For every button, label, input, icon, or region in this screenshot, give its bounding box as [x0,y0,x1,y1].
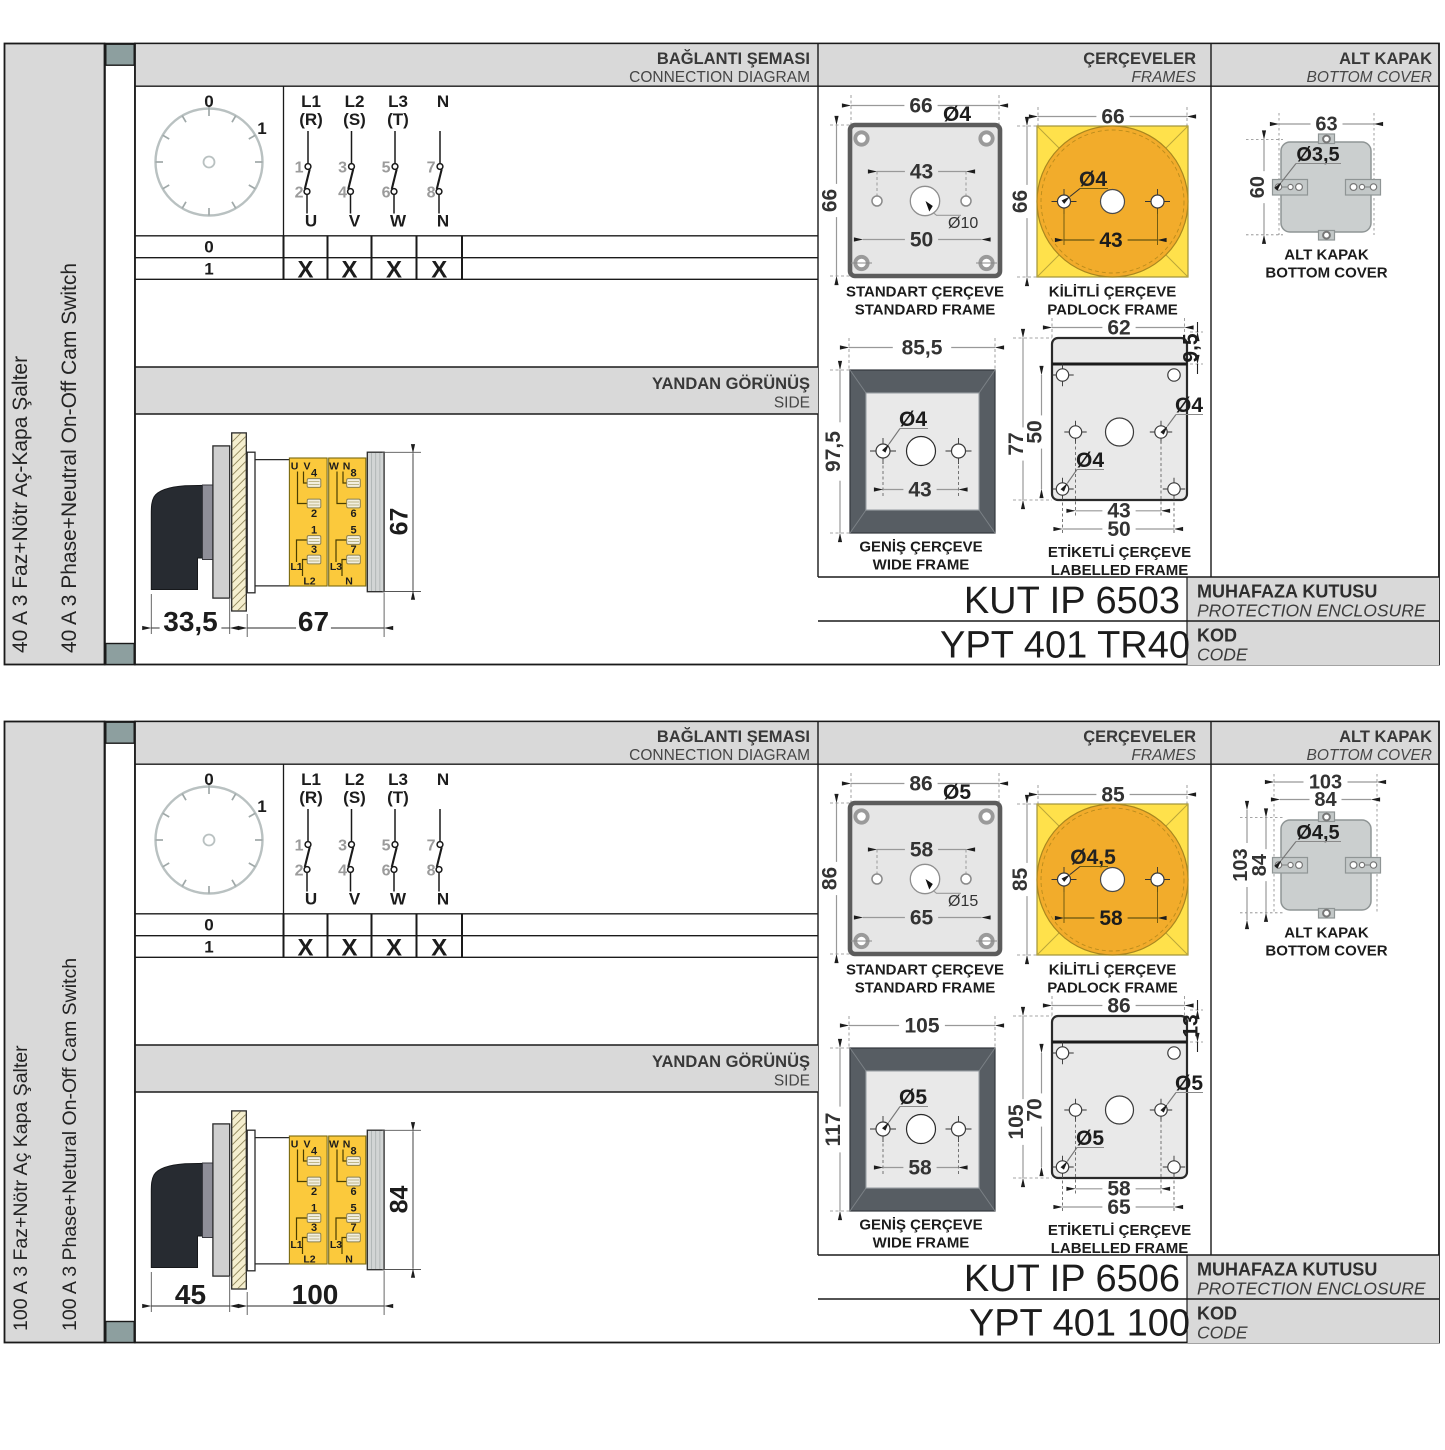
svg-text:6: 6 [382,185,391,202]
svg-text:BAĞLANTI ŞEMASI: BAĞLANTI ŞEMASI [657,727,810,746]
svg-text:X: X [386,257,402,284]
svg-text:X: X [341,257,357,284]
svg-text:Ø4,5: Ø4,5 [1296,822,1339,844]
svg-text:STANDART ÇERÇEVE: STANDART ÇERÇEVE [846,284,1004,301]
svg-text:L2: L2 [345,770,365,789]
svg-text:5: 5 [350,1203,356,1215]
svg-text:3: 3 [338,838,347,855]
svg-text:N: N [343,1139,351,1151]
svg-text:CODE: CODE [1197,1323,1248,1343]
svg-text:U: U [291,1139,299,1151]
svg-text:0: 0 [204,238,213,257]
svg-text:85: 85 [1009,868,1032,892]
svg-text:FRAMES: FRAMES [1131,747,1196,764]
svg-text:66: 66 [909,94,932,117]
svg-text:Ø3,5: Ø3,5 [1296,144,1339,166]
svg-text:40 A 3 Faz+Nötr Aç-Kapa Şalter: 40 A 3 Faz+Nötr Aç-Kapa Şalter [9,356,32,653]
svg-text:8: 8 [350,468,356,480]
svg-text:BOTTOM COVER: BOTTOM COVER [1265,265,1387,282]
svg-text:63: 63 [1315,114,1337,136]
svg-text:U: U [291,461,299,473]
svg-text:67: 67 [386,508,414,536]
svg-text:L1: L1 [301,770,321,789]
svg-text:86: 86 [909,772,932,795]
svg-text:SIDE: SIDE [774,1073,810,1090]
svg-text:1: 1 [295,838,304,855]
svg-text:2: 2 [295,185,304,202]
svg-text:2: 2 [311,508,317,520]
svg-text:X: X [386,935,402,962]
svg-text:33,5: 33,5 [163,606,218,637]
svg-text:WIDE FRAME: WIDE FRAME [873,1235,970,1252]
svg-text:1: 1 [257,797,266,816]
svg-text:L1: L1 [290,561,302,573]
svg-text:(S): (S) [343,788,366,807]
svg-text:U: U [305,212,317,231]
svg-text:62: 62 [1107,316,1130,339]
svg-text:84: 84 [1314,789,1337,811]
svg-text:67: 67 [298,606,329,637]
svg-text:PROTECTION ENCLOSURE: PROTECTION ENCLOSURE [1197,601,1426,621]
svg-text:N: N [437,212,449,231]
svg-text:W: W [329,1139,339,1151]
svg-text:BOTTOM COVER: BOTTOM COVER [1307,747,1432,764]
svg-text:40 A 3 Phase+Neutral On-Off Ca: 40 A 3 Phase+Neutral On-Off Cam Switch [58,263,81,653]
svg-text:ÇERÇEVELER: ÇERÇEVELER [1083,50,1196,68]
svg-text:43: 43 [910,160,933,183]
svg-text:66: 66 [1101,105,1124,128]
svg-text:50: 50 [910,228,933,251]
svg-text:Ø4: Ø4 [1076,449,1104,472]
svg-text:2: 2 [311,1186,317,1198]
svg-text:(T): (T) [387,788,409,807]
svg-text:1: 1 [295,160,304,177]
svg-text:7: 7 [427,838,436,855]
svg-text:6: 6 [350,508,356,520]
svg-text:84: 84 [1249,853,1271,876]
svg-text:ALT KAPAK: ALT KAPAK [1284,247,1369,264]
svg-text:5: 5 [382,838,391,855]
svg-text:100: 100 [292,1279,339,1310]
svg-text:PROTECTION ENCLOSURE: PROTECTION ENCLOSURE [1197,1279,1426,1299]
svg-text:117: 117 [822,1113,845,1147]
svg-text:8: 8 [427,185,436,202]
svg-text:L2: L2 [303,1254,315,1266]
svg-text:X: X [297,257,313,284]
svg-text:4: 4 [338,863,347,880]
svg-text:84: 84 [386,1186,414,1214]
svg-text:STANDART ÇERÇEVE: STANDART ÇERÇEVE [846,962,1004,979]
svg-text:8: 8 [427,863,436,880]
svg-text:N: N [345,1254,353,1266]
svg-text:L2: L2 [303,576,315,588]
svg-text:V: V [349,890,361,909]
svg-text:CODE: CODE [1197,645,1248,665]
svg-text:ALT KAPAK: ALT KAPAK [1284,925,1369,942]
svg-text:Ø4: Ø4 [943,103,971,126]
svg-text:STANDARD FRAME: STANDARD FRAME [855,302,996,319]
svg-text:WIDE FRAME: WIDE FRAME [873,557,970,574]
svg-text:L3: L3 [388,770,408,789]
svg-text:Ø10: Ø10 [948,215,978,232]
svg-text:4: 4 [311,1146,318,1158]
svg-text:KOD: KOD [1197,626,1237,646]
svg-text:5: 5 [350,525,356,537]
svg-text:85,5: 85,5 [902,336,943,359]
svg-text:N: N [345,576,353,588]
svg-text:KUT IP 6503: KUT IP 6503 [964,580,1180,622]
svg-text:1: 1 [204,260,213,279]
svg-text:50: 50 [1024,420,1047,443]
svg-text:GENİŞ ÇERÇEVE: GENİŞ ÇERÇEVE [859,539,982,556]
svg-text:Ø15: Ø15 [948,893,978,910]
svg-text:Ø5: Ø5 [943,781,971,804]
svg-text:0: 0 [204,770,213,789]
svg-text:58: 58 [908,1156,932,1179]
svg-text:50: 50 [1107,518,1130,541]
svg-text:0: 0 [204,92,213,111]
svg-text:L1: L1 [290,1239,302,1251]
svg-text:(R): (R) [299,110,323,129]
svg-text:58: 58 [910,838,934,861]
svg-text:W: W [390,890,407,909]
svg-text:1: 1 [311,525,317,537]
svg-text:GENİŞ ÇERÇEVE: GENİŞ ÇERÇEVE [859,1217,982,1234]
svg-text:L3: L3 [330,1239,342,1251]
svg-text:Ø4,5: Ø4,5 [1070,846,1116,869]
svg-text:3: 3 [311,1222,317,1234]
svg-text:Ø5: Ø5 [1175,1072,1203,1095]
svg-text:3: 3 [338,160,347,177]
svg-text:43: 43 [1099,229,1122,252]
svg-text:V: V [303,1139,310,1151]
svg-text:BOTTOM COVER: BOTTOM COVER [1307,69,1432,86]
svg-text:KİLİTLİ ÇERÇEVE: KİLİTLİ ÇERÇEVE [1049,284,1177,301]
svg-text:YANDAN GÖRÜNÜŞ: YANDAN GÖRÜNÜŞ [652,1052,810,1071]
svg-text:7: 7 [350,1222,356,1234]
svg-text:MUHAFAZA KUTUSU: MUHAFAZA KUTUSU [1197,582,1377,602]
svg-text:X: X [431,257,447,284]
svg-text:70: 70 [1024,1098,1047,1121]
svg-text:ALT KAPAK: ALT KAPAK [1339,728,1432,746]
svg-text:1: 1 [257,119,266,138]
svg-text:U: U [305,890,317,909]
svg-text:85: 85 [1101,783,1125,806]
svg-text:W: W [329,461,339,473]
svg-text:CONNECTION DIAGRAM: CONNECTION DIAGRAM [629,69,810,86]
svg-text:W: W [390,212,407,231]
svg-text:4: 4 [311,468,318,480]
svg-text:(T): (T) [387,110,409,129]
svg-text:6: 6 [350,1186,356,1198]
svg-text:58: 58 [1099,907,1123,930]
svg-text:100 A 3 Faz+Nötr Aç Kapa Şalte: 100 A 3 Faz+Nötr Aç Kapa Şalter [10,1045,32,1331]
svg-text:66: 66 [819,189,842,212]
svg-text:L1: L1 [301,92,321,111]
svg-text:8: 8 [350,1146,356,1158]
svg-text:X: X [341,935,357,962]
svg-text:MUHAFAZA KUTUSU: MUHAFAZA KUTUSU [1197,1260,1377,1280]
svg-text:ÇERÇEVELER: ÇERÇEVELER [1083,728,1196,746]
svg-text:V: V [303,461,310,473]
svg-text:YPT 401 100: YPT 401 100 [969,1303,1190,1345]
svg-text:Ø5: Ø5 [899,1086,927,1109]
svg-text:(S): (S) [343,110,366,129]
svg-text:L3: L3 [388,92,408,111]
svg-text:BAĞLANTI ŞEMASI: BAĞLANTI ŞEMASI [657,49,810,68]
svg-text:105: 105 [904,1014,939,1037]
svg-text:BOTTOM COVER: BOTTOM COVER [1265,943,1387,960]
svg-text:7: 7 [350,544,356,556]
svg-text:86: 86 [1107,994,1130,1017]
svg-text:6: 6 [382,863,391,880]
svg-text:7: 7 [427,160,436,177]
svg-text:100 A 3 Phase+Netural On-Off C: 100 A 3 Phase+Netural On-Off Cam Switch [59,958,81,1331]
svg-text:97,5: 97,5 [822,431,845,472]
svg-text:66: 66 [1009,190,1032,213]
svg-text:Ø4: Ø4 [1175,394,1203,417]
svg-text:N: N [437,92,449,111]
svg-text:3: 3 [311,544,317,556]
svg-text:V: V [349,212,361,231]
svg-text:X: X [431,935,447,962]
svg-text:45: 45 [175,1279,206,1310]
svg-text:STANDARD FRAME: STANDARD FRAME [855,980,996,997]
svg-text:YANDAN GÖRÜNÜŞ: YANDAN GÖRÜNÜŞ [652,374,810,393]
svg-text:X: X [297,935,313,962]
svg-text:(R): (R) [299,788,323,807]
svg-text:86: 86 [819,867,842,890]
svg-text:43: 43 [908,478,931,501]
svg-text:13: 13 [1180,1014,1203,1037]
svg-text:Ø4: Ø4 [1079,168,1107,191]
svg-text:N: N [437,770,449,789]
svg-text:N: N [343,461,351,473]
svg-text:Ø4: Ø4 [899,408,927,431]
svg-text:1: 1 [311,1203,317,1215]
svg-text:KUT IP 6506: KUT IP 6506 [964,1258,1180,1300]
svg-text:YPT 401 TR40: YPT 401 TR40 [940,625,1190,667]
svg-text:60: 60 [1247,176,1269,198]
svg-text:2: 2 [295,863,304,880]
svg-text:9,5: 9,5 [1180,333,1203,363]
svg-text:ALT KAPAK: ALT KAPAK [1339,50,1432,68]
svg-text:CONNECTION DIAGRAM: CONNECTION DIAGRAM [629,747,810,764]
svg-text:N: N [437,890,449,909]
svg-text:1: 1 [204,938,213,957]
svg-text:0: 0 [204,916,213,935]
svg-text:65: 65 [910,906,934,929]
svg-text:FRAMES: FRAMES [1131,69,1196,86]
svg-text:ETİKETLİ ÇERÇEVE: ETİKETLİ ÇERÇEVE [1048,544,1191,561]
svg-text:65: 65 [1107,1196,1131,1219]
svg-text:KİLİTLİ ÇERÇEVE: KİLİTLİ ÇERÇEVE [1049,962,1177,979]
svg-text:L3: L3 [330,561,342,573]
svg-text:L2: L2 [345,92,365,111]
svg-text:ETİKETLİ ÇERÇEVE: ETİKETLİ ÇERÇEVE [1048,1222,1191,1239]
svg-text:5: 5 [382,160,391,177]
svg-text:Ø5: Ø5 [1076,1127,1104,1150]
svg-text:SIDE: SIDE [774,395,810,412]
svg-text:KOD: KOD [1197,1304,1237,1324]
svg-text:4: 4 [338,185,347,202]
